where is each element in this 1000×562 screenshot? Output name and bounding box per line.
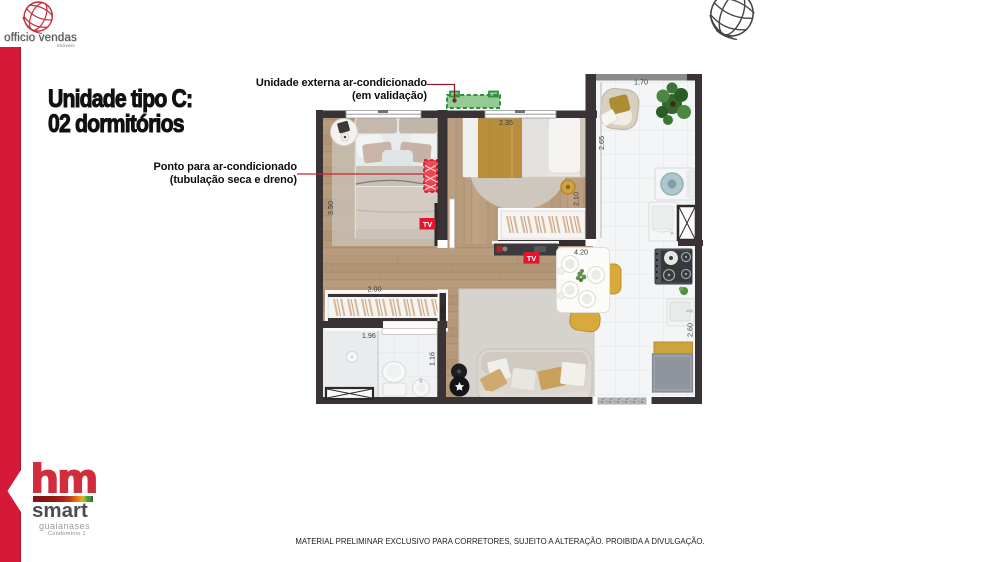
svg-text:4.20: 4.20 xyxy=(574,248,588,257)
svg-text:2.00: 2.00 xyxy=(368,285,382,294)
svg-text:3.50: 3.50 xyxy=(326,201,335,215)
svg-text:TV: TV xyxy=(423,220,433,229)
svg-text:2.60: 2.60 xyxy=(438,306,447,320)
svg-text:1.16: 1.16 xyxy=(428,352,437,366)
svg-text:2.35: 2.35 xyxy=(499,118,513,127)
svg-text:1.96: 1.96 xyxy=(362,331,376,340)
svg-text:2.10: 2.10 xyxy=(572,192,581,206)
svg-text:TV: TV xyxy=(527,254,537,263)
svg-text:2.60: 2.60 xyxy=(686,323,695,337)
svg-text:1.70: 1.70 xyxy=(634,78,648,87)
svg-text:2.65: 2.65 xyxy=(597,136,606,150)
